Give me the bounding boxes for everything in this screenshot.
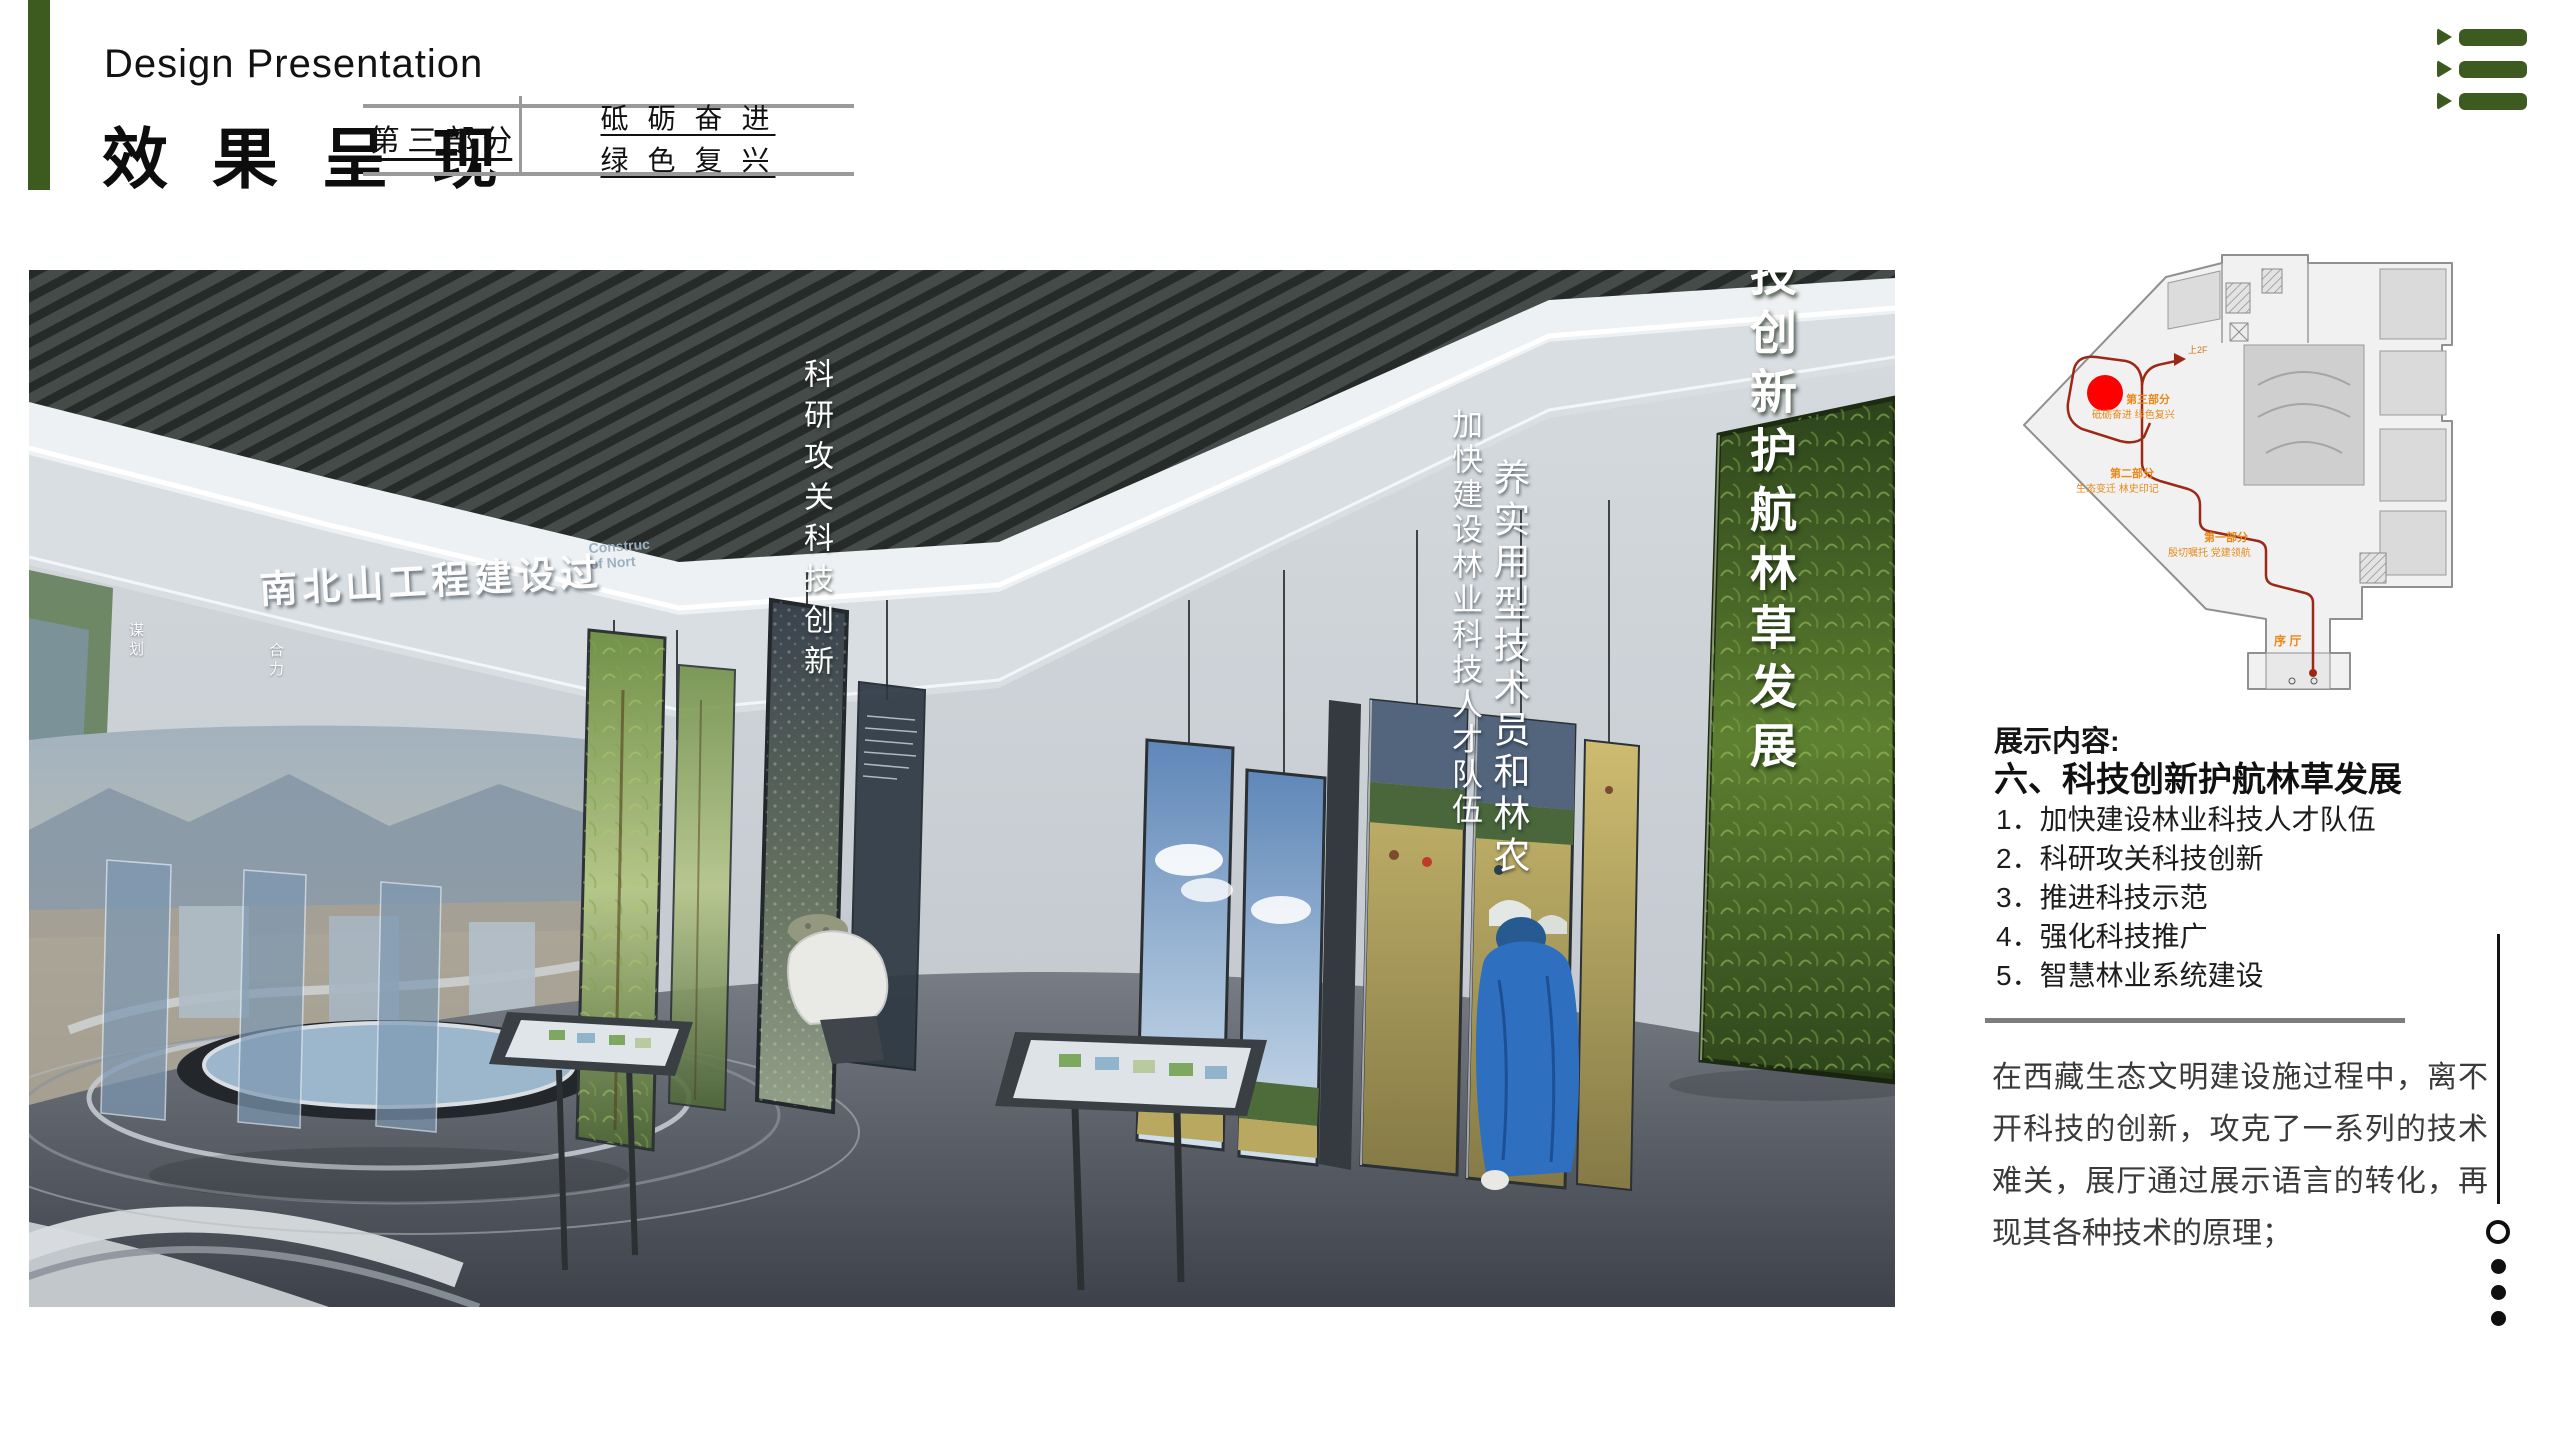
label-part3: 第三部分 bbox=[2126, 392, 2170, 406]
subtitle-en: Design Presentation bbox=[104, 42, 483, 87]
list-menu-icon[interactable] bbox=[2437, 28, 2529, 110]
floorplan-map: 第三部分 砥砺奋进 绿色复兴 第二部分 生态变迁 林史印记 第一部分 殷切嘱托 … bbox=[2008, 253, 2460, 693]
menu-bar bbox=[2459, 61, 2527, 78]
label-part1: 第一部分 bbox=[2204, 530, 2248, 544]
list-item: 2．科研攻关科技创新 bbox=[1996, 839, 2476, 878]
page-dot[interactable] bbox=[2491, 1285, 2506, 1300]
list-item: 3．推进科技示范 bbox=[1996, 878, 2476, 917]
menu-bar bbox=[2459, 29, 2527, 46]
slide: Design Presentation 效果呈现 第 三 部 分 砥 砺 奋 进… bbox=[0, 0, 2560, 1440]
label-part1-sub: 殷切嘱托 党建领航 bbox=[2168, 546, 2251, 559]
exhibition-render bbox=[29, 270, 1895, 1307]
label-to-2f: 上2F bbox=[2188, 345, 2208, 355]
page-dot[interactable] bbox=[2491, 1311, 2506, 1326]
list-menu-row bbox=[2437, 28, 2529, 46]
label-part2-sub: 生态变迁 林史印记 bbox=[2076, 482, 2159, 495]
part-number: 第 三 部 分 bbox=[370, 116, 513, 160]
vertical-text-theme: 科技创新护航林草发展 bbox=[1735, 270, 1804, 780]
vertical-text-research: 科研攻关科技创新 bbox=[793, 358, 837, 686]
glass-panel-label: 谋划 bbox=[125, 622, 146, 660]
exhibition-render-image: Construc of Nort 南北山工程建设过 谋划 合力 科研攻关科技创新… bbox=[29, 270, 1895, 1307]
triangle-bullet-icon bbox=[2437, 60, 2452, 78]
page-dot-active[interactable] bbox=[2486, 1220, 2510, 1244]
label-part3-sub: 砥砺奋进 绿色复兴 bbox=[2092, 408, 2175, 421]
part-motto-cell: 砥 砺 奋 进 绿 色 复 兴 bbox=[522, 106, 854, 170]
worker-blue-jacket bbox=[1476, 917, 1579, 1190]
list-menu-row bbox=[2437, 92, 2529, 110]
content-list: 1．加快建设林业科技人才队伍 2．科研攻关科技创新 3．推进科技示范 4．强化科… bbox=[1996, 800, 2476, 995]
accent-bar bbox=[28, 0, 50, 190]
list-item: 4．强化科技推广 bbox=[1996, 917, 2476, 956]
triangle-bullet-icon bbox=[2437, 92, 2452, 110]
list-item: 1．加快建设林业科技人才队伍 bbox=[1996, 800, 2476, 839]
description-paragraph: 在西藏生态文明建设施过程中，离不开科技的创新，攻克了一系列的技术难关，展厅通过展… bbox=[1992, 1052, 2488, 1260]
vertical-rule bbox=[2497, 934, 2500, 1204]
label-lobby: 序 厅 bbox=[2274, 633, 2301, 648]
current-location-marker bbox=[2087, 375, 2123, 411]
list-item: 5．智慧林业系统建设 bbox=[1996, 956, 2476, 995]
motto-line-1: 砥 砺 奋 进 bbox=[600, 97, 775, 137]
glass-panel-label: 合力 bbox=[265, 642, 286, 680]
page-dot[interactable] bbox=[2491, 1259, 2506, 1274]
part-number-cell: 第 三 部 分 bbox=[363, 104, 519, 172]
list-menu-row bbox=[2437, 60, 2529, 78]
glass-info-panels bbox=[101, 860, 441, 1132]
label-part2: 第二部分 bbox=[2110, 466, 2154, 480]
divider-rule bbox=[1985, 1018, 2405, 1023]
part-label-table: 第 三 部 分 砥 砺 奋 进 绿 色 复 兴 bbox=[363, 96, 854, 178]
motto-line-2: 绿 色 复 兴 bbox=[600, 139, 775, 179]
triangle-bullet-icon bbox=[2437, 28, 2452, 46]
menu-bar bbox=[2459, 93, 2527, 110]
section-title: 六、科技创新护航林草发展 bbox=[1994, 752, 2402, 801]
vertical-text-training: 养实用型技术员和林农 bbox=[1481, 458, 1535, 878]
